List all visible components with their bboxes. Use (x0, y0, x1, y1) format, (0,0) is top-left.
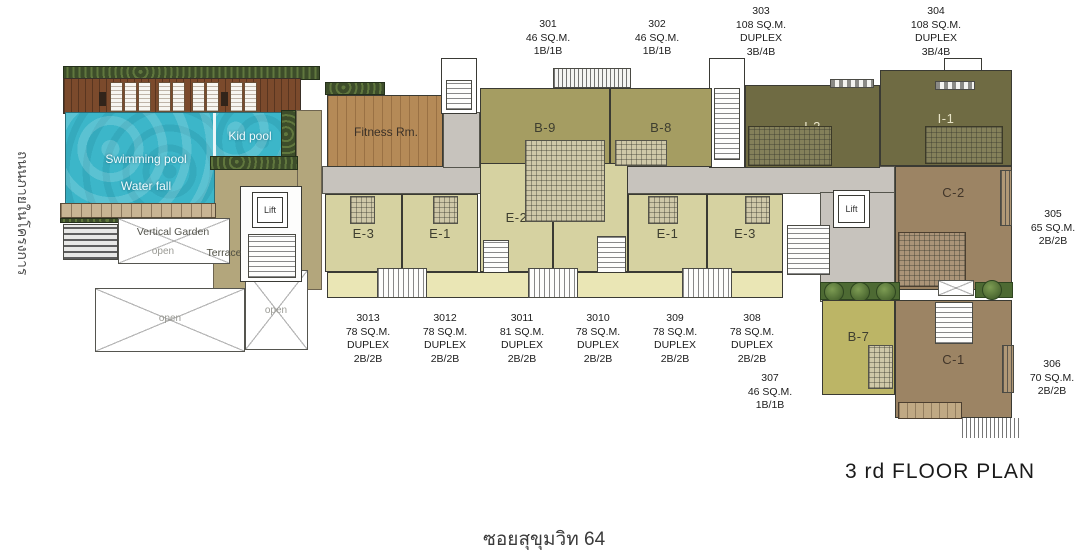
bathroom-block (648, 196, 678, 224)
unit-label: E-3 (734, 226, 756, 241)
bathroom-block (898, 232, 966, 287)
callout-302: 30246 SQ.M.1B/1B (635, 18, 679, 59)
callout-308: 30878 SQ.M.DUPLEX2B/2B (730, 312, 774, 367)
bush (824, 282, 844, 302)
unit-label: B-7 (848, 329, 870, 344)
balcony-louver (553, 68, 631, 88)
callout-305: 30565 SQ.M.2B/2B (1031, 208, 1075, 249)
balcony-checker (935, 81, 975, 90)
water-fall-label: Water fall (121, 179, 171, 193)
sun-lounger (172, 82, 185, 112)
unit-label: E-1 (429, 226, 451, 241)
bathroom-block (615, 140, 667, 166)
bathroom-block (748, 126, 832, 166)
kid-pool-label: Kid pool (228, 129, 271, 143)
bathroom-block (925, 126, 1003, 164)
callout-3013: 301378 SQ.M.DUPLEX2B/2B (346, 312, 390, 367)
fitness-room-label: Fitness Rm. (354, 125, 418, 139)
open-label: open (159, 313, 181, 324)
louver-grate (63, 224, 118, 260)
bottom-road-label: ซอยสุขุมวิท 64 (483, 524, 605, 554)
callout-3011: 301181 SQ.M.DUPLEX2B/2B (500, 312, 544, 367)
swimming-pool-label: Swimming pool (105, 152, 186, 166)
hedge (210, 156, 298, 170)
bathroom-block (868, 345, 893, 389)
deck-post (99, 92, 106, 106)
sun-lounger (206, 82, 219, 112)
waterfall-wall (60, 203, 216, 218)
unit-label: I-1 (938, 111, 955, 126)
bathroom-block (525, 140, 605, 222)
stairs (714, 88, 740, 160)
bush (982, 280, 1002, 300)
sun-lounger (158, 82, 171, 112)
balcony-C-1 (898, 402, 962, 419)
bathroom-block (350, 196, 375, 224)
vertical-garden-label: Vertical Garden (137, 226, 209, 238)
floor-plan-canvas: Swimming pool Water fall Kid pool Vertic… (0, 0, 1079, 556)
callout-306: 30670 SQ.M.2B/2B (1030, 358, 1074, 399)
balcony-louver (1000, 170, 1012, 226)
bathroom-block (433, 196, 458, 224)
sun-lounger (244, 82, 257, 112)
sun-lounger (124, 82, 137, 112)
callout-309: 30978 SQ.M.DUPLEX2B/2B (653, 312, 697, 367)
bathroom-block (745, 196, 770, 224)
open-label: open (152, 246, 174, 257)
unit-label: E-3 (353, 226, 375, 241)
duplex-stairs (528, 268, 578, 298)
stairs-right-core (787, 225, 830, 275)
sun-lounger (192, 82, 205, 112)
callout-301: 30146 SQ.M.1B/1B (526, 18, 570, 59)
page-title: 3 rd FLOOR PLAN (845, 460, 1035, 484)
stairs-left-core (248, 234, 296, 278)
duplex-stairs (682, 268, 732, 298)
planting-strip (325, 82, 385, 95)
walkway (938, 280, 974, 296)
sun-lounger (138, 82, 151, 112)
callout-3010: 301078 SQ.M.DUPLEX2B/2B (576, 312, 620, 367)
terrace-label: Terrace (206, 247, 241, 259)
pool-divider (213, 113, 216, 157)
left-road-label: ถนนภายในโครงการ (11, 151, 33, 275)
unit-label: B-9 (534, 120, 556, 135)
balcony-louver (1002, 345, 1014, 393)
bush (850, 282, 870, 302)
callout-303: 303108 SQ.M.DUPLEX3B/4B (736, 5, 786, 60)
open-label: open (265, 305, 287, 316)
sun-lounger (230, 82, 243, 112)
awning-hatch (962, 418, 1020, 438)
balcony-checker (830, 79, 874, 88)
lift-right: Lift (833, 190, 870, 228)
unit-label: C-1 (942, 352, 964, 367)
deck-post (221, 92, 228, 106)
callout-3012: 301278 SQ.M.DUPLEX2B/2B (423, 312, 467, 367)
unit-label: B-8 (650, 120, 672, 135)
unit-label: E-1 (657, 226, 679, 241)
bush (876, 282, 896, 302)
duplex-stairs (377, 268, 427, 298)
stairs (935, 302, 973, 344)
sun-lounger (110, 82, 123, 112)
lift-left: Lift (252, 192, 288, 228)
stairs (446, 80, 472, 110)
callout-307: 30746 SQ.M.1B/1B (748, 372, 792, 413)
callout-304: 304108 SQ.M.DUPLEX3B/4B (911, 5, 961, 60)
stairs (597, 236, 626, 274)
lobby-fitness (443, 112, 480, 168)
unit-label: C-2 (942, 185, 964, 200)
